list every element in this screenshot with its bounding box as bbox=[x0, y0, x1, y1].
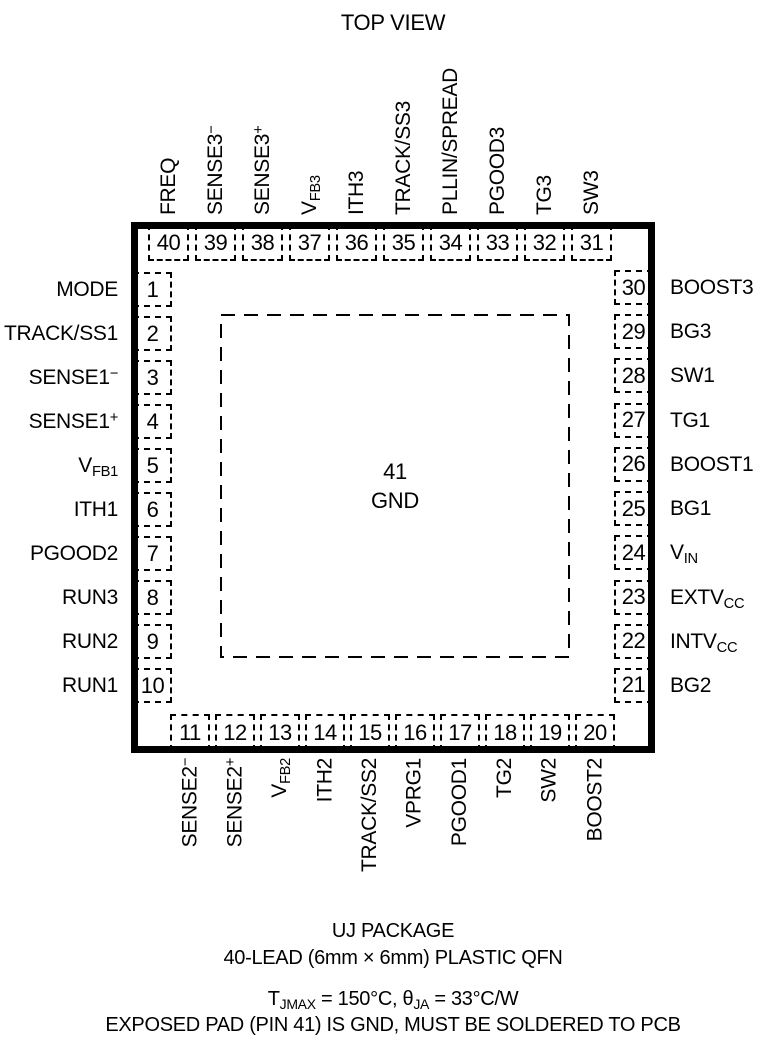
pin-31-number: 31 bbox=[580, 230, 603, 256]
pin-37-label: VFB3 bbox=[298, 175, 322, 215]
pin-18-number: 18 bbox=[493, 720, 516, 746]
thermal-spec: TJMAX = 150°C, θJA = 33°C/W bbox=[13, 988, 760, 1011]
pin-13-number: 13 bbox=[268, 720, 291, 746]
pin-2-number: 2 bbox=[147, 321, 159, 347]
pin-16-label: VPRG1 bbox=[403, 758, 427, 828]
pin-12-box: 12 bbox=[215, 714, 255, 751]
bottom-pin-row: 11121314151617181920 bbox=[170, 714, 615, 751]
pin-5-number: 5 bbox=[147, 453, 159, 479]
pin-26-box: 26 bbox=[614, 447, 653, 482]
pin-24-box: 24 bbox=[614, 535, 653, 570]
pin-10-label: RUN1 bbox=[0, 668, 118, 703]
pin-33-number: 33 bbox=[486, 230, 509, 256]
pin-21-number: 21 bbox=[622, 672, 645, 698]
pin-24-number: 24 bbox=[622, 540, 645, 566]
pin-35-box: 35 bbox=[383, 224, 424, 261]
pin-35-label: TRACK/SS3 bbox=[392, 101, 416, 215]
pin-7-number: 7 bbox=[147, 541, 159, 567]
pin-4-label: SENSE1+ bbox=[0, 404, 118, 439]
package-description: 40-LEAD (6mm × 6mm) PLASTIC QFN bbox=[13, 947, 760, 970]
pin-23-label: EXTVCC bbox=[670, 580, 760, 615]
top-pin-labels: FREQSENSE3−SENSE3+VFB3ITH3TRACK/SS3PLLIN… bbox=[148, 38, 612, 215]
pin-3-label: SENSE1− bbox=[0, 360, 118, 395]
pin-9-label: RUN2 bbox=[0, 624, 118, 659]
pin-13-label: VFB2 bbox=[268, 758, 292, 798]
pin-15-box: 15 bbox=[350, 714, 390, 751]
pin-19-number: 19 bbox=[538, 720, 561, 746]
pin-27-number: 27 bbox=[622, 407, 645, 433]
pin-11-number: 11 bbox=[179, 720, 201, 746]
pin-38-label-slot: SENSE3+ bbox=[242, 38, 283, 215]
pin-11-box: 11 bbox=[170, 714, 210, 751]
pin-29-number: 29 bbox=[622, 319, 645, 345]
pin-16-label-slot: VPRG1 bbox=[395, 758, 435, 928]
pin-36-box: 36 bbox=[336, 224, 377, 261]
pin-18-label: TG2 bbox=[493, 758, 517, 798]
pin-20-label: BOOST2 bbox=[583, 758, 607, 841]
pin-39-label-slot: SENSE3− bbox=[195, 38, 236, 215]
pin-40-label: FREQ bbox=[157, 158, 181, 215]
pin-33-box: 33 bbox=[477, 224, 518, 261]
pin-14-label-slot: ITH2 bbox=[305, 758, 345, 928]
pin-21-label: BG2 bbox=[670, 668, 760, 703]
pin-19-label: SW2 bbox=[538, 758, 562, 803]
pin-20-number: 20 bbox=[583, 720, 606, 746]
pin-19-box: 19 bbox=[530, 714, 570, 751]
pin-1-label: MODE bbox=[0, 272, 118, 307]
pin-23-number: 23 bbox=[622, 584, 645, 610]
pin-31-label: SW3 bbox=[580, 170, 604, 215]
pin-8-label: RUN3 bbox=[0, 580, 118, 615]
pin-15-number: 15 bbox=[358, 720, 381, 746]
pin-10-box: 10 bbox=[133, 668, 172, 703]
left-pin-column: 12345678910 bbox=[133, 272, 172, 703]
pin-15-label-slot: TRACK/SS2 bbox=[350, 758, 390, 928]
pin-36-number: 36 bbox=[345, 230, 368, 256]
pin-25-box: 25 bbox=[614, 491, 653, 526]
pin-8-number: 8 bbox=[147, 585, 159, 611]
pin-33-label: PGOOD3 bbox=[486, 127, 510, 215]
right-pin-labels: BOOST3BG3SW1TG1BOOST1BG1VINEXTVCCINTVCCB… bbox=[670, 270, 760, 703]
pin-8-box: 8 bbox=[133, 580, 172, 615]
pin-32-number: 32 bbox=[533, 230, 556, 256]
pin-27-label: TG1 bbox=[670, 403, 760, 438]
pin-11-label: SENSE2− bbox=[178, 758, 202, 847]
pin-30-box: 30 bbox=[614, 270, 653, 305]
pin-17-label: PGOOD1 bbox=[448, 758, 472, 846]
pin-15-label: TRACK/SS2 bbox=[358, 758, 382, 872]
pin-18-box: 18 bbox=[485, 714, 525, 751]
pin-35-label-slot: TRACK/SS3 bbox=[383, 38, 424, 215]
pin-20-box: 20 bbox=[575, 714, 615, 751]
pin-38-number: 38 bbox=[251, 230, 274, 256]
qfn-pinout-diagram: TOP VIEW FREQSENSE3−SENSE3+VFB3ITH3TRACK… bbox=[0, 0, 760, 1041]
pin-37-number: 37 bbox=[298, 230, 321, 256]
pin-32-label-slot: TG3 bbox=[524, 38, 565, 215]
pin-36-label-slot: ITH3 bbox=[336, 38, 377, 215]
pin-11-label-slot: SENSE2− bbox=[170, 758, 210, 928]
exposed-pad-number: 41 bbox=[383, 457, 407, 486]
pin-7-box: 7 bbox=[133, 536, 172, 571]
left-pin-labels: MODETRACK/SS1SENSE1−SENSE1+VFB1ITH1PGOOD… bbox=[0, 272, 118, 703]
pin-30-number: 30 bbox=[622, 275, 645, 301]
pin-20-label-slot: BOOST2 bbox=[575, 758, 615, 928]
pin-26-number: 26 bbox=[622, 451, 645, 477]
pin-12-label-slot: SENSE2+ bbox=[215, 758, 255, 928]
pin-34-number: 34 bbox=[439, 230, 462, 256]
pin-5-label: VFB1 bbox=[0, 448, 118, 483]
pin-14-number: 14 bbox=[313, 720, 336, 746]
pin-26-label: BOOST1 bbox=[670, 447, 760, 482]
pin-21-box: 21 bbox=[614, 668, 653, 703]
exposed-pad-name: GND bbox=[371, 486, 419, 515]
pin-22-number: 22 bbox=[622, 628, 645, 654]
pin-25-number: 25 bbox=[622, 496, 645, 522]
pin-4-number: 4 bbox=[147, 409, 159, 435]
pin-32-label: TG3 bbox=[533, 175, 557, 215]
pin-17-number: 17 bbox=[448, 720, 471, 746]
pin-37-label-slot: VFB3 bbox=[289, 38, 330, 215]
bottom-pin-labels: SENSE2−SENSE2+VFB2ITH2TRACK/SS2VPRG1PGOO… bbox=[170, 758, 615, 928]
pin-16-number: 16 bbox=[403, 720, 426, 746]
pin-17-box: 17 bbox=[440, 714, 480, 751]
pin-5-box: 5 bbox=[133, 448, 172, 483]
pin-33-label-slot: PGOOD3 bbox=[477, 38, 518, 215]
pin-30-label: BOOST3 bbox=[670, 270, 760, 305]
pin-34-label-slot: PLLIN/SPREAD bbox=[430, 38, 471, 215]
top-pin-row: 40393837363534333231 bbox=[148, 224, 612, 261]
pin-16-box: 16 bbox=[395, 714, 435, 751]
pin-23-box: 23 bbox=[614, 580, 653, 615]
pin-7-label: PGOOD2 bbox=[0, 536, 118, 571]
pin-6-box: 6 bbox=[133, 492, 172, 527]
pin-9-box: 9 bbox=[133, 624, 172, 659]
pin-19-label-slot: SW2 bbox=[530, 758, 570, 928]
pin-40-label-slot: FREQ bbox=[148, 38, 189, 215]
pin-24-label: VIN bbox=[670, 535, 760, 570]
pin-35-number: 35 bbox=[392, 230, 415, 256]
pin-39-number: 39 bbox=[204, 230, 227, 256]
pin-29-box: 29 bbox=[614, 314, 653, 349]
pin-6-number: 6 bbox=[147, 497, 159, 523]
top-view-label: TOP VIEW bbox=[13, 10, 760, 36]
pin-22-box: 22 bbox=[614, 624, 653, 659]
pin-32-box: 32 bbox=[524, 224, 565, 261]
pin-37-box: 37 bbox=[289, 224, 330, 261]
pin-34-box: 34 bbox=[430, 224, 471, 261]
pin-6-label: ITH1 bbox=[0, 492, 118, 527]
pin-9-number: 9 bbox=[147, 629, 159, 655]
pin-27-box: 27 bbox=[614, 403, 653, 438]
package-outline: 40393837363534333231 1112131415161718192… bbox=[131, 222, 655, 753]
pin-40-number: 40 bbox=[157, 230, 180, 256]
exposed-pad-note: EXPOSED PAD (PIN 41) IS GND, MUST BE SOL… bbox=[13, 1014, 760, 1037]
pin-2-box: 2 bbox=[133, 316, 172, 351]
pin-28-label: SW1 bbox=[670, 358, 760, 393]
package-name: UJ PACKAGE bbox=[13, 920, 760, 943]
pin-28-box: 28 bbox=[614, 358, 653, 393]
pin-13-label-slot: VFB2 bbox=[260, 758, 300, 928]
pin-25-label: BG1 bbox=[670, 491, 760, 526]
pin-14-label: ITH2 bbox=[313, 758, 337, 802]
pin-22-label: INTVCC bbox=[670, 624, 760, 659]
pin-10-number: 10 bbox=[141, 673, 164, 699]
pin-12-label: SENSE2+ bbox=[223, 758, 247, 847]
pin-39-label: SENSE3− bbox=[204, 126, 228, 215]
pin-1-number: 1 bbox=[147, 277, 159, 303]
pin-36-label: ITH3 bbox=[345, 171, 369, 215]
pin-31-label-slot: SW3 bbox=[571, 38, 612, 215]
pin-3-number: 3 bbox=[147, 365, 159, 391]
pin-2-label: TRACK/SS1 bbox=[0, 316, 118, 351]
pin-29-label: BG3 bbox=[670, 314, 760, 349]
pin-34-label: PLLIN/SPREAD bbox=[439, 68, 463, 215]
pin-38-box: 38 bbox=[242, 224, 283, 261]
pin-4-box: 4 bbox=[133, 404, 172, 439]
pin-12-number: 12 bbox=[223, 720, 246, 746]
pin-40-box: 40 bbox=[148, 224, 189, 261]
pin-14-box: 14 bbox=[305, 714, 345, 751]
pin-39-box: 39 bbox=[195, 224, 236, 261]
pin-28-number: 28 bbox=[622, 363, 645, 389]
pin-1-box: 1 bbox=[133, 272, 172, 307]
pin-3-box: 3 bbox=[133, 360, 172, 395]
right-pin-column: 30292827262524232221 bbox=[614, 270, 653, 703]
pin-17-label-slot: PGOOD1 bbox=[440, 758, 480, 928]
pin-31-box: 31 bbox=[571, 224, 612, 261]
exposed-pad: 41 GND bbox=[220, 314, 570, 658]
pin-13-box: 13 bbox=[260, 714, 300, 751]
pin-18-label-slot: TG2 bbox=[485, 758, 525, 928]
pin-38-label: SENSE3+ bbox=[251, 126, 275, 215]
